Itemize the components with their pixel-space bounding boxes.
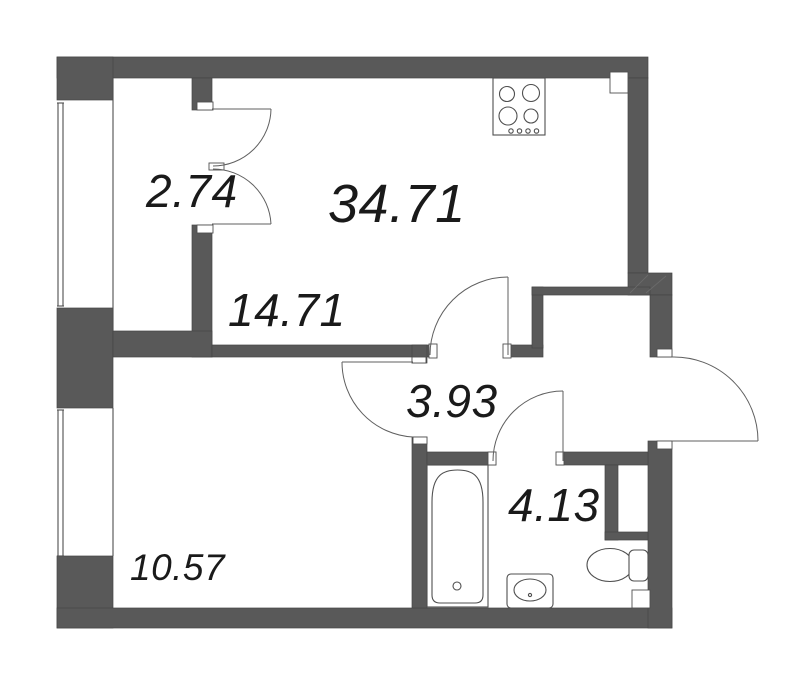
door-jamb [503,344,511,358]
wall-segment [532,287,543,348]
wall-segment [628,78,648,273]
corner-shaft-box [610,72,628,93]
wall-segment [427,452,496,465]
hallway-door [430,277,508,355]
window-glazing [57,410,64,556]
closet-area-label: 2.74 [145,165,238,217]
door-jamb [197,102,213,110]
wall-segment [57,608,672,628]
bathroom-door [493,391,563,461]
toilet-icon [587,549,648,582]
entrance-door [672,357,758,441]
door-jamb [413,437,427,444]
wall-segment [557,452,648,465]
wall-segment [605,465,618,540]
wall-segment [648,441,672,628]
floor-plan-svg: 2.74 34.71 14.71 3.93 4.13 10.57 [0,0,800,682]
door-jamb [488,452,496,465]
bedroom-door [342,362,413,437]
door-jamb [412,357,426,363]
stove-icon [493,78,545,135]
wall-segment [57,57,648,78]
door-swing-arc [493,391,563,461]
wall-segment [113,331,212,357]
door-jamb [657,441,672,449]
wall-segment [412,437,427,608]
living-area-label: 14.71 [228,284,346,336]
door-jamb [657,349,672,357]
window-glazing [57,103,64,306]
door-swing-arc [342,362,413,437]
wall-segment [57,57,113,100]
wall-segment [605,532,648,540]
wall-segment [650,295,672,357]
wall-segment [212,345,437,357]
total-area-label: 34.71 [328,174,466,234]
door-swing-arc [672,357,758,441]
hall-area-label: 3.93 [406,375,498,427]
door-swing-arc [430,277,508,355]
door-swing-arc [213,109,271,166]
bedroom-area-label: 10.57 [130,547,226,588]
wall-segment [57,308,113,408]
wall-recess-box [632,590,650,608]
bathroom-area-label: 4.13 [508,479,600,531]
bathtub-icon [427,465,488,607]
floor-plan-page: 2.74 34.71 14.71 3.93 4.13 10.57 [0,0,800,682]
sink-icon [507,574,553,608]
door-jamb [197,225,213,233]
walls [57,57,672,628]
